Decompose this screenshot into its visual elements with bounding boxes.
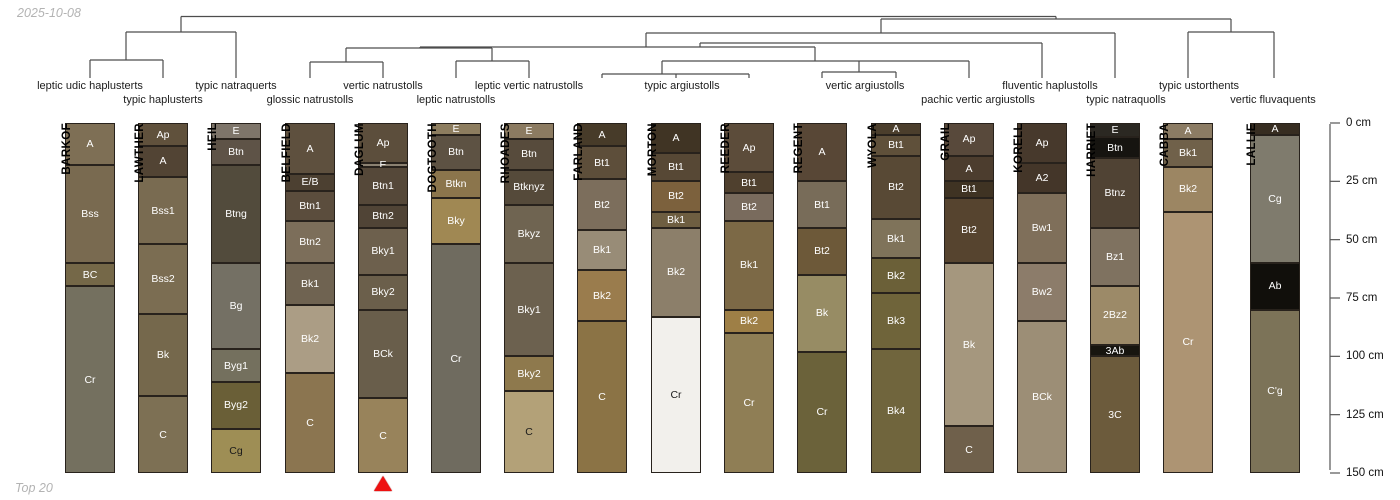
horizon-label: A [306,144,313,154]
profile-name-label: FARLAND [573,123,585,181]
horizon-band: Bt1 [944,181,994,197]
horizon-band: 3Ab [1090,345,1140,357]
horizon-label: C [525,427,533,437]
horizon-band: Bk3 [871,293,921,349]
horizon-label: 2Bz2 [1103,310,1127,320]
horizon-label: Bky [447,216,465,226]
taxon-label: typic natraquolls [1086,94,1166,106]
horizon-label: Bt1 [961,184,977,194]
horizon-band: Bt2 [944,198,994,263]
profile-name-label: MORTON [647,123,659,176]
horizon-label: Bk2 [1179,184,1197,194]
horizon-label: E/B [302,177,319,187]
horizon-label: Bss1 [151,206,174,216]
horizon-label: Ap [743,143,756,153]
horizon-label: Btkn [445,179,466,189]
horizon-label: A [818,147,825,157]
horizon-label: Ap [963,134,976,144]
horizon-band: Bss2 [138,244,188,314]
horizon-label: Btn2 [372,211,394,221]
horizon-label: Bky1 [517,305,540,315]
profile-name-label: HARRIET [1086,123,1098,177]
horizon-label: Ap [157,130,170,140]
profile-column-heil: EBtnBtngBgByg1Byg2Cg [211,123,261,473]
taxon-label: typic ustorthents [1159,80,1239,92]
horizon-band: C [138,396,188,473]
horizon-label: Btng [225,209,247,219]
horizon-band: C [944,426,994,473]
taxon-label: glossic natrustolls [267,94,354,106]
horizon-band: Bk1 [285,263,335,305]
axis-tick-label: 125 cm [1346,409,1384,421]
horizon-label: Bt2 [668,191,684,201]
horizon-band: Bk1 [651,212,701,228]
horizon-label: Bk1 [1179,148,1197,158]
horizon-band: Bt2 [724,193,774,221]
horizon-label: Btn [228,147,244,157]
horizon-band: Byg2 [211,382,261,429]
profile-column-wyola: ABt1Bt2Bk1Bk2Bk3Bk4 [871,123,921,473]
horizon-band: Byg1 [211,349,261,382]
horizon-band: Bg [211,263,261,349]
horizon-label: Btn2 [299,237,321,247]
horizon-band: Btng [211,165,261,263]
horizon-label: Bk [816,308,828,318]
horizon-label: Bk1 [667,215,685,225]
horizon-label: E [525,126,532,136]
horizon-band: Bkyz [504,205,554,263]
horizon-label: Bk3 [887,316,905,326]
horizon-band: Bk2 [724,310,774,333]
profile-name-label: REGENT [793,123,805,173]
taxon-label: vertic argiustolls [826,80,905,92]
horizon-label: A [1271,124,1278,134]
horizon-label: Btn [448,147,464,157]
horizon-label: Btnz [1104,188,1125,198]
horizon-label: Bky2 [517,369,540,379]
horizon-label: 3C [1108,410,1121,420]
horizon-band: BC [65,263,115,286]
horizon-label: Ap [377,138,390,148]
horizon-label: Bk2 [887,271,905,281]
horizon-band: Btn2 [285,221,335,263]
horizon-label: Cr [450,354,461,364]
horizon-label: Bt1 [888,140,904,150]
horizon-band: Cr [1163,212,1213,473]
horizon-label: A [86,139,93,149]
horizon-label: Bk1 [593,245,611,255]
horizon-band: C'g [1250,310,1300,473]
horizon-band: 2Bz2 [1090,286,1140,344]
horizon-label: Bg [230,301,243,311]
horizon-label: C [379,431,387,441]
horizon-label: A [892,124,899,134]
horizon-label: Bk2 [593,291,611,301]
profile-name-label: GRAIL [940,123,952,161]
plot-date: 2025-10-08 [17,6,81,20]
horizon-label: Bw2 [1032,287,1052,297]
horizon-band: Bky1 [504,263,554,356]
horizon-band: BCk [358,310,408,399]
horizon-band: Cr [431,244,481,473]
horizon-label: A [598,130,605,140]
horizon-band: Bw1 [1017,193,1067,263]
horizon-label: Bt2 [741,202,757,212]
horizon-label: Cg [229,446,242,456]
horizon-label: Cr [816,407,827,417]
horizon-band: Bw2 [1017,263,1067,321]
profile-name-label: BARKOF [61,123,73,175]
horizon-band: Btn1 [285,191,335,221]
horizon-label: Bt1 [814,200,830,210]
soil-profile-plot: 2025-10-08 Top 20 leptic udic haplustert… [0,0,1400,500]
horizon-label: Ab [1269,281,1282,291]
horizon-band: Bt1 [797,181,847,228]
horizon-band: Bt2 [577,179,627,230]
horizon-band: Bss1 [138,177,188,245]
horizon-label: Bk1 [740,260,758,270]
axis-tick-label: 75 cm [1346,292,1377,304]
taxon-label: leptic natrustolls [417,94,496,106]
horizon-label: Bt2 [594,200,610,210]
horizon-band: Bky1 [358,228,408,275]
horizon-label: C [306,418,314,428]
profile-column-cabba: ABk1Bk2Cr [1163,123,1213,473]
horizon-label: Byg2 [224,400,248,410]
horizon-band: Cr [724,333,774,473]
profile-name-label: HEIL [207,123,219,151]
horizon-band: C [285,373,335,473]
horizon-label: BCk [1032,392,1052,402]
horizon-label: Ap [1036,138,1049,148]
profile-marker-triangle [374,476,392,491]
profile-name-label: BELFIELD [281,123,293,182]
horizon-label: Bk4 [887,406,905,416]
horizon-band: Bt2 [651,181,701,211]
horizon-label: A [965,164,972,174]
horizon-band: Bk2 [577,270,627,321]
profile-name-label: LALLIE [1246,123,1258,166]
horizon-label: Cr [84,375,95,385]
horizon-band: Bky2 [504,356,554,391]
horizon-label: Cr [670,390,681,400]
horizon-label: Bt1 [668,162,684,172]
horizon-label: C [598,392,606,402]
horizon-band: Bk [797,275,847,352]
taxon-label: vertic natrustolls [343,80,422,92]
horizon-band: 3C [1090,356,1140,473]
profile-name-label: LAWTHER [134,123,146,183]
axis-tick-label: 150 cm [1346,467,1384,479]
profile-column-korell: ApA2Bw1Bw2BCk [1017,123,1067,473]
horizon-band: Bk [944,263,994,426]
horizon-label: C [965,445,973,455]
taxon-label: fluventic haplustolls [1002,80,1097,92]
horizon-band: BCk [1017,321,1067,473]
taxon-label: pachic vertic argiustolls [921,94,1035,106]
horizon-band: Cr [651,317,701,473]
horizon-label: BC [83,270,98,280]
horizon-label: Bt2 [961,225,977,235]
profile-name-label: REEDER [720,123,732,173]
horizon-label: Bt2 [814,246,830,256]
horizon-label: Byg1 [224,361,248,371]
horizon-band: Bk2 [1163,167,1213,211]
horizon-band: Cr [797,352,847,473]
horizon-band: Btn2 [358,205,408,228]
axis-tick-label: 100 cm [1346,350,1384,362]
horizon-label: Bt2 [888,182,904,192]
profile-name-label: WYOLA [867,123,879,168]
horizon-label: BCk [373,349,393,359]
horizon-label: Bk1 [887,234,905,244]
horizon-label: Btknyz [513,182,545,192]
horizon-band: C [577,321,627,473]
horizon-label: Bss [81,209,99,219]
horizon-label: A [159,156,166,166]
horizon-label: E [1111,125,1118,135]
taxon-label: leptic vertic natrustolls [475,80,583,92]
plot-footer-note: Top 20 [15,481,53,495]
horizon-band: Bt2 [797,228,847,275]
horizon-label: Bky2 [371,287,394,297]
horizon-label: Btn1 [299,201,321,211]
horizon-band: Bk2 [285,305,335,373]
horizon-label: C [159,430,167,440]
horizon-label: Bk [963,340,975,350]
horizon-band: Bk1 [577,230,627,270]
taxon-label: typic argiustolls [644,80,719,92]
taxon-label: leptic udic haplusterts [37,80,143,92]
horizon-band: Bk2 [871,258,921,293]
profile-name-label: DAGLUM [354,123,366,176]
axis-tick-label: 25 cm [1346,175,1377,187]
horizon-label: Cg [1268,194,1281,204]
profile-name-label: CABBA [1159,123,1171,167]
axis-tick-label: 50 cm [1346,234,1377,246]
horizon-label: Cr [743,398,754,408]
profile-name-label: RHOADES [500,123,512,183]
horizon-label: Btn1 [372,181,394,191]
horizon-label: Btn [1107,143,1123,153]
profile-column-grail: ApABt1Bt2BkC [944,123,994,473]
taxon-label: typic haplusterts [123,94,202,106]
horizon-band: Ab [1250,263,1300,310]
horizon-band: Bss [65,165,115,263]
horizon-band: Bt1 [724,172,774,193]
horizon-label: C'g [1267,386,1282,396]
horizon-label: Bt1 [741,178,757,188]
profile-column-lallie: ACgAbC'g [1250,123,1300,473]
horizon-label: Bkyz [518,229,541,239]
horizon-label: Bk2 [667,267,685,277]
horizon-label: A2 [1036,173,1049,183]
horizon-band: Cg [211,429,261,473]
horizon-label: Bk1 [301,279,319,289]
horizon-label: Bt1 [594,158,610,168]
profile-column-barkof: ABssBCCr [65,123,115,473]
taxon-label: vertic fluvaquents [1230,94,1316,106]
taxon-label: typic natraquerts [195,80,276,92]
horizon-label: E [232,126,239,136]
horizon-band: Bk4 [871,349,921,473]
horizon-band: C [504,391,554,473]
profile-name-label: DOGTOOTH [427,123,439,192]
profile-name-label: KORELL [1013,123,1025,173]
horizon-band: Cr [65,286,115,473]
horizon-band: Bk2 [651,228,701,317]
horizon-label: A [672,133,679,143]
horizon-band: Bk1 [724,221,774,310]
horizon-label: Bk [157,350,169,360]
horizon-label: 3Ab [1106,346,1125,356]
profile-column-regent: ABt1Bt2BkCr [797,123,847,473]
horizon-label: E [452,124,459,134]
profile-column-reeder: ApBt1Bt2Bk1Bk2Cr [724,123,774,473]
horizon-band: Bky [431,198,481,245]
horizon-label: Bz1 [1106,252,1124,262]
horizon-label: Bk2 [301,334,319,344]
horizon-label: Bk2 [740,316,758,326]
horizon-band: Bk1 [871,219,921,259]
horizon-band: Bz1 [1090,228,1140,286]
horizon-label: Bss2 [151,274,174,284]
axis-tick-label: 0 cm [1346,117,1371,129]
horizon-band: Bk [138,314,188,396]
horizon-label: Bw1 [1032,223,1052,233]
horizon-band: C [358,398,408,473]
horizon-label: A [1184,126,1191,136]
horizon-label: Bky1 [371,246,394,256]
horizon-band: Bky2 [358,275,408,310]
horizon-label: Cr [1182,337,1193,347]
horizon-label: Btn [521,149,537,159]
